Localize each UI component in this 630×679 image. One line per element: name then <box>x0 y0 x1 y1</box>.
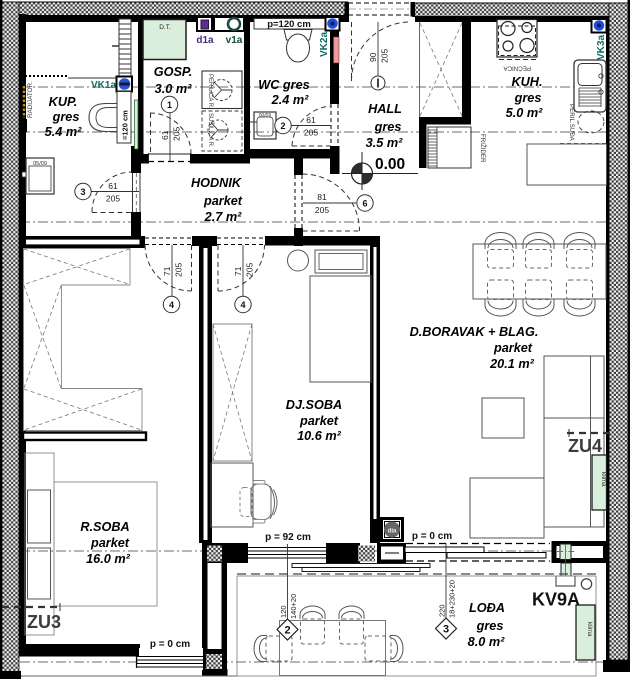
svg-text:6: 6 <box>362 199 367 209</box>
svg-text:205: 205 <box>315 205 329 215</box>
svg-text:D.T.: D.T. <box>159 24 171 31</box>
svg-text:HODNIK: HODNIK <box>191 176 242 190</box>
svg-text:61: 61 <box>160 130 170 140</box>
svg-text:PEĆNICA: PEĆNICA <box>503 65 531 72</box>
svg-text:GOSP.: GOSP. <box>154 65 193 79</box>
svg-text:220: 220 <box>438 604 447 617</box>
svg-text:10.6 m²: 10.6 m² <box>297 429 341 443</box>
svg-text:ZU3: ZU3 <box>27 612 61 632</box>
svg-text:205: 205 <box>380 49 390 63</box>
svg-text:VK3a: VK3a <box>596 35 607 60</box>
svg-text:205: 205 <box>106 194 120 204</box>
svg-text:WC gres: WC gres <box>258 78 309 92</box>
svg-text:klima: klima <box>600 472 607 487</box>
svg-text:90: 90 <box>368 52 378 62</box>
svg-text:gres: gres <box>374 120 402 134</box>
svg-text:120: 120 <box>279 605 288 618</box>
svg-text:5.0 m²: 5.0 m² <box>506 106 543 120</box>
svg-text:D.BORAVAK + BLAG.: D.BORAVAK + BLAG. <box>410 325 539 339</box>
svg-text:p = 0 cm: p = 0 cm <box>412 531 452 542</box>
svg-text:LOĐA: LOĐA <box>469 601 505 615</box>
svg-text:81: 81 <box>317 192 327 202</box>
svg-text:R.SOBA: R.SOBA <box>80 520 129 534</box>
svg-text:v1a: v1a <box>226 35 243 46</box>
svg-text:parket: parket <box>203 194 243 208</box>
svg-text:VK1a: VK1a <box>91 80 116 91</box>
svg-text:3: 3 <box>443 624 449 636</box>
svg-text:KUP.: KUP. <box>49 95 78 109</box>
svg-text:klima: klima <box>586 622 593 637</box>
svg-text:gres: gres <box>52 110 80 124</box>
svg-text:PERILICA R.: PERILICA R. <box>207 74 213 109</box>
svg-text:KUH.: KUH. <box>511 75 542 89</box>
svg-text:parket: parket <box>493 341 533 355</box>
svg-text:61: 61 <box>108 181 118 191</box>
svg-text:2.4 m²: 2.4 m² <box>271 93 309 107</box>
svg-text:3: 3 <box>80 187 85 197</box>
svg-text:61: 61 <box>306 115 316 125</box>
svg-text:3.5 m²: 3.5 m² <box>366 136 403 150</box>
svg-text:05/09: 05/09 <box>33 161 47 167</box>
svg-text:140+20: 140+20 <box>289 594 298 619</box>
svg-text:205: 205 <box>172 127 182 141</box>
svg-text:20.1 m²: 20.1 m² <box>489 357 534 371</box>
svg-text:3.0 m²: 3.0 m² <box>155 82 192 96</box>
svg-text:d1a: d1a <box>196 35 214 46</box>
svg-text:parket: parket <box>299 414 339 428</box>
svg-text:00/09: 00/09 <box>259 113 272 119</box>
svg-text:gres: gres <box>476 619 504 633</box>
svg-text:71: 71 <box>233 266 243 276</box>
svg-text:205: 205 <box>174 263 184 277</box>
svg-text:RADIJATOR.: RADIJATOR. <box>27 81 34 118</box>
svg-text:p = 92 cm: p = 92 cm <box>265 532 311 543</box>
svg-text:HALL: HALL <box>368 102 402 116</box>
svg-text:71: 71 <box>162 266 172 276</box>
svg-text:FRIŽIDER: FRIŽIDER <box>479 134 487 163</box>
svg-text:parket: parket <box>90 536 130 550</box>
svg-text:VK2a: VK2a <box>319 32 330 57</box>
svg-text:dia: dia <box>388 529 397 535</box>
svg-text:ZU4: ZU4 <box>568 436 602 456</box>
svg-text:=120 cm: =120 cm <box>121 110 130 140</box>
svg-text:PERIL.SUĐA: PERIL.SUĐA <box>568 104 575 142</box>
svg-text:1: 1 <box>167 100 172 110</box>
svg-text:DJ.SOBA: DJ.SOBA <box>286 398 342 412</box>
svg-text:205: 205 <box>304 128 318 138</box>
svg-text:2.7 m²: 2.7 m² <box>204 210 242 224</box>
svg-text:0.00: 0.00 <box>375 156 405 173</box>
svg-text:16.0 m²: 16.0 m² <box>86 552 130 566</box>
svg-text:4: 4 <box>169 300 174 310</box>
svg-text:2: 2 <box>280 121 285 131</box>
svg-text:5.4 m²: 5.4 m² <box>45 125 82 139</box>
svg-text:2: 2 <box>284 625 290 637</box>
svg-text:p=120 cm: p=120 cm <box>267 19 311 30</box>
svg-text:gres: gres <box>514 91 542 105</box>
svg-text:18+230+20: 18+230+20 <box>448 580 457 618</box>
svg-text:KV9A: KV9A <box>532 590 580 610</box>
svg-text:205: 205 <box>245 263 255 277</box>
svg-text:8.0 m²: 8.0 m² <box>468 635 505 649</box>
svg-text:p = 0 cm: p = 0 cm <box>150 639 190 650</box>
svg-text:4: 4 <box>240 300 245 310</box>
svg-text:SUŠILICA R.: SUŠILICA R. <box>207 113 214 148</box>
